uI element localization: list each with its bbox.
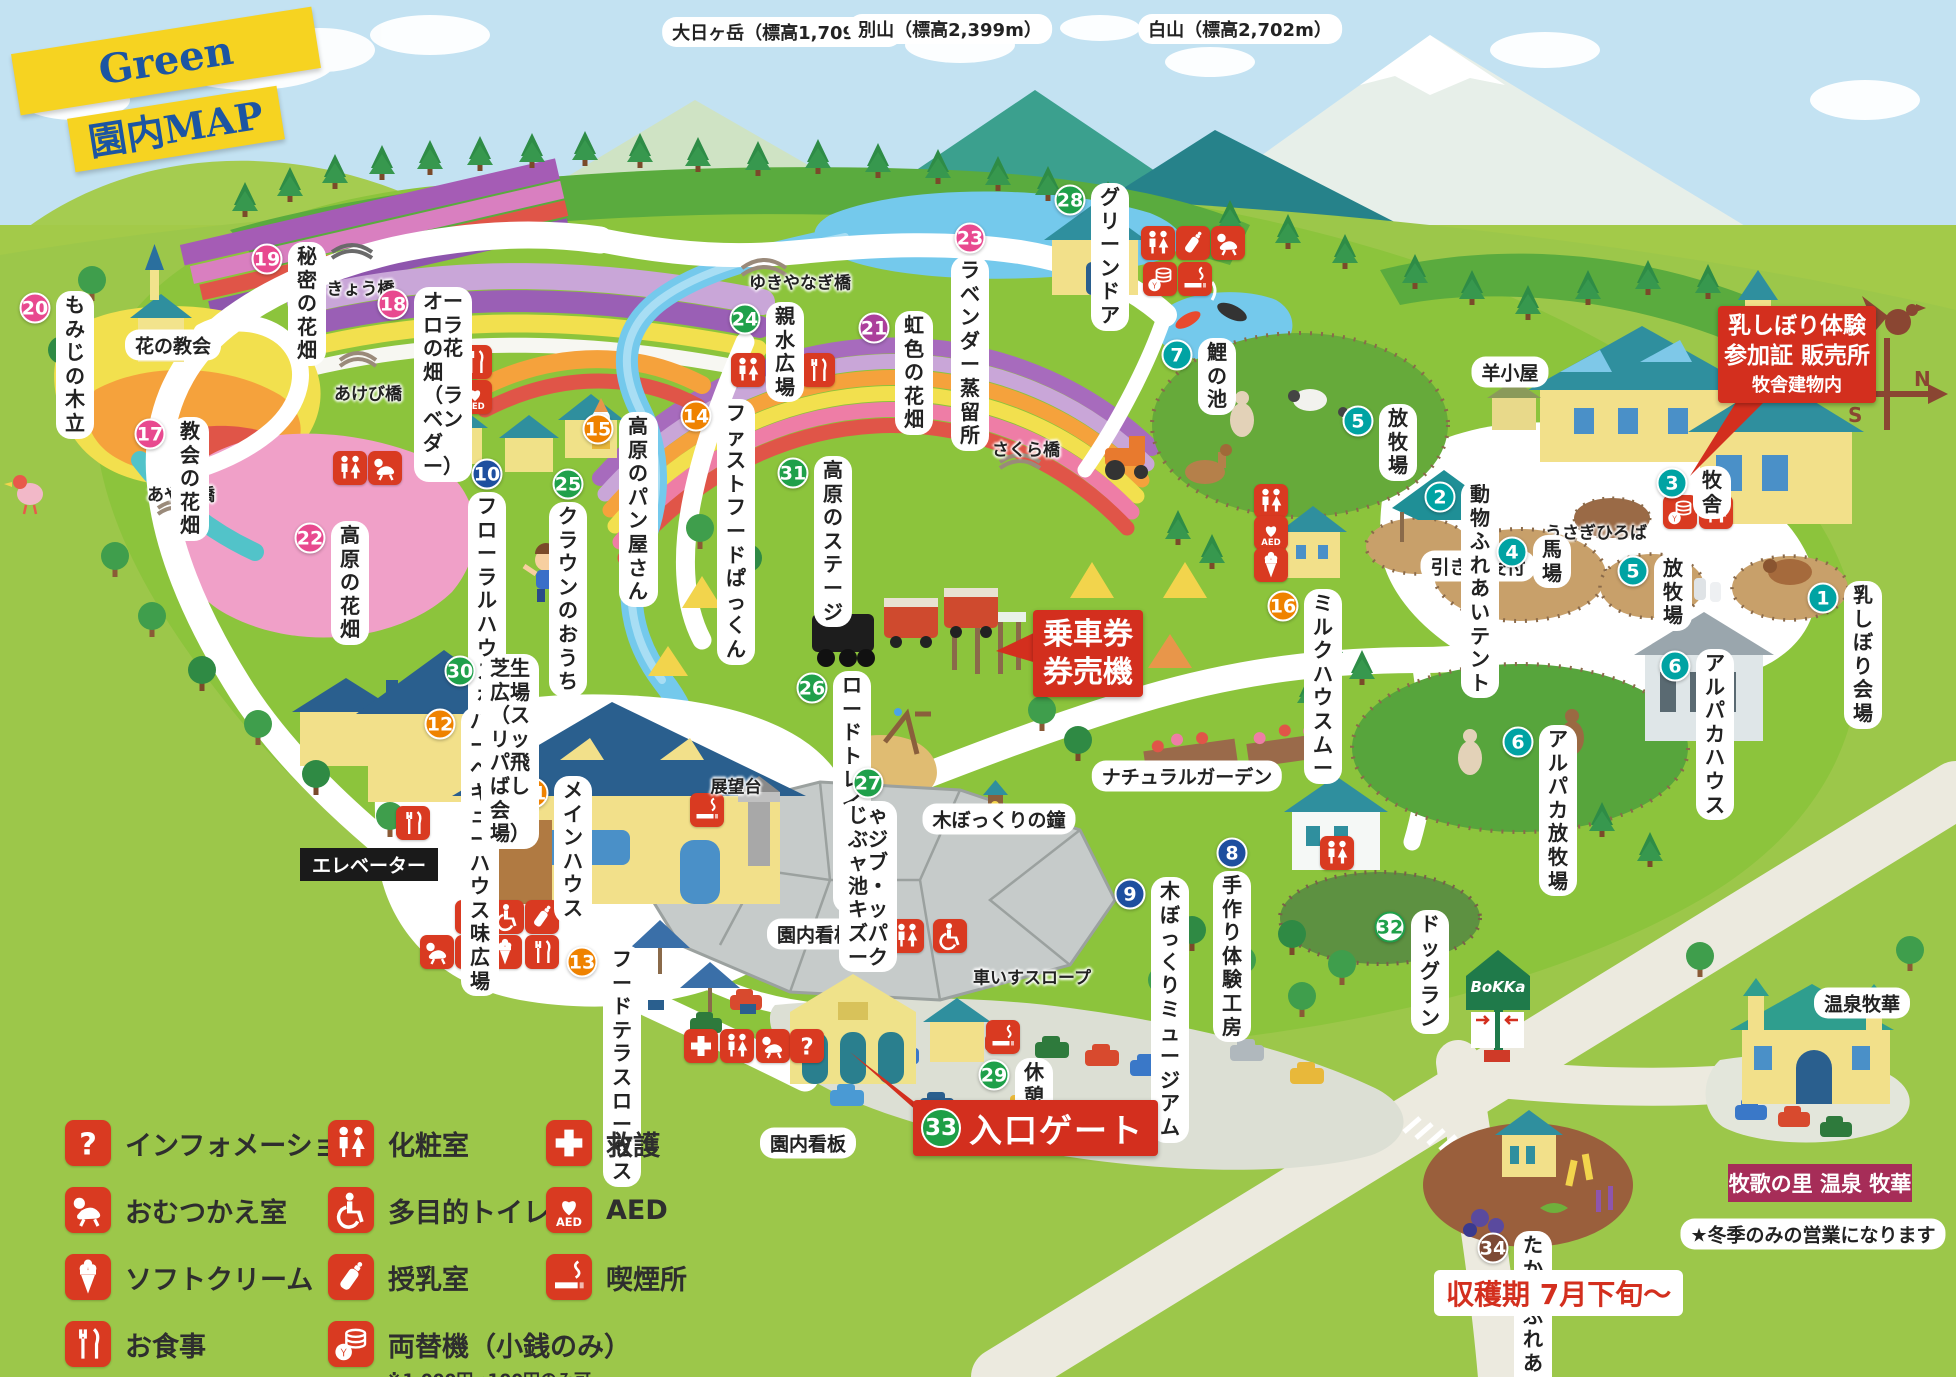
legend-item: おむつかえ室: [65, 1187, 287, 1233]
marker-number: 2: [1425, 482, 1456, 513]
milking-experience-callout: 乳しぼり体験 参加証 販売所 牧舎建物内: [1718, 306, 1876, 403]
marker-number: 19: [252, 244, 283, 275]
marker-number: 12: [425, 709, 456, 740]
marker-number: 17: [135, 419, 166, 450]
place-label: 園内看板: [760, 1128, 856, 1159]
svg-text:N: N: [1914, 367, 1931, 391]
onsen-logo: 牧歌の里 温泉 牧華: [1728, 1164, 1912, 1202]
marker-number: 30: [445, 656, 476, 687]
marker-label: 親水広場: [766, 302, 804, 402]
marker-number: 1: [1808, 583, 1839, 614]
marker-label: グリーンドア: [1091, 183, 1129, 331]
legend-label: 喫煙所: [606, 1258, 687, 1297]
svg-text:?: ?: [800, 1035, 813, 1061]
marker-number: 7: [1162, 340, 1193, 371]
marker-label: ミルクハウスムー: [1304, 589, 1342, 784]
diaper-icon: [368, 451, 402, 485]
marker-number: 29: [979, 1060, 1010, 1091]
exchange-icon: ¥: [1143, 262, 1177, 296]
legend-item: ¥両替機（小銭のみ）: [328, 1321, 631, 1367]
wheelchair-icon: [328, 1187, 374, 1233]
svg-text:BoKKa: BoKKa: [1470, 978, 1525, 996]
svg-text:¥: ¥: [1151, 281, 1158, 292]
marker-label: 乳しぼり会場: [1844, 581, 1882, 729]
svg-text:¥: ¥: [1671, 514, 1678, 525]
marker-label: 高原の パン屋さん: [619, 412, 658, 607]
marker-number: 25: [553, 469, 584, 500]
firstaid-icon: [546, 1120, 592, 1166]
meal-icon: [525, 935, 559, 969]
marker-label: ラベンダー蒸留所: [951, 256, 989, 451]
mountain-label: 白山（標高2,702m）: [1138, 14, 1342, 44]
marker-label: 秘密の花畑: [288, 242, 326, 366]
marker-number: 22: [295, 523, 326, 554]
elevator-label: エレベーター: [300, 848, 438, 881]
aed-icon: AED: [1254, 516, 1288, 550]
marker-33: 33: [921, 1108, 961, 1148]
marker-number: 4: [1497, 537, 1528, 568]
smoking-icon: [546, 1254, 592, 1300]
marker-number: 9: [1115, 879, 1146, 910]
place-label: ナチュラルガーデン: [1092, 761, 1282, 792]
toilet-icon: [720, 1029, 754, 1063]
meal-icon: [801, 353, 835, 387]
legend-label: 化粧室: [388, 1124, 469, 1163]
marker-number: 23: [955, 223, 986, 254]
meal-icon: [396, 806, 430, 840]
legend-label: 両替機（小銭のみ）: [388, 1325, 631, 1364]
marker-number: 26: [797, 673, 828, 704]
diaper-icon: [420, 935, 454, 969]
marker-label: 虹色の花畑: [895, 311, 933, 435]
legend-label: お食事: [125, 1325, 206, 1364]
legend-item: 授乳室: [328, 1254, 469, 1300]
legend-note: ※1,000円→100円のみ可: [386, 1366, 591, 1377]
smoking-icon: [986, 1020, 1020, 1054]
marker-label: 鯉の池: [1198, 338, 1236, 415]
marker-label: アルパカハウス: [1696, 649, 1734, 820]
toilet-icon: [731, 353, 765, 387]
marker-label: 手作り体験工房: [1213, 871, 1251, 1042]
exchange-icon: ¥: [1663, 495, 1697, 529]
marker-number: 6: [1503, 727, 1534, 758]
marker-label: オーロラの花畑（ラベンダー）: [414, 287, 472, 482]
toilet-icon: [1141, 226, 1175, 260]
marker-label: クラウンのおうち: [549, 502, 587, 697]
place-label: ゆきやなぎ橋: [749, 269, 851, 294]
diaper-icon: [1211, 226, 1245, 260]
mountain-label: 別山（標高2,399m）: [848, 14, 1052, 44]
legend-item: AEDAED: [546, 1187, 668, 1233]
marker-number: 24: [730, 304, 761, 335]
svg-text:?: ?: [79, 1127, 97, 1162]
park-map: BoKKa S N: [0, 0, 1956, 1377]
svg-text:AED: AED: [1261, 538, 1280, 548]
marker-label: ドッグラン: [1411, 910, 1449, 1034]
legend-item: お食事: [65, 1321, 206, 1367]
legend-item: 多目的トイレ: [328, 1187, 550, 1233]
toilet-icon: [333, 451, 367, 485]
legend-item: 化粧室: [328, 1120, 469, 1166]
marker-number: 21: [859, 313, 890, 344]
legend-label: AED: [606, 1195, 668, 1226]
marker-number: 18: [378, 289, 409, 320]
legend-label: 授乳室: [388, 1258, 469, 1297]
marker-number: 15: [583, 414, 614, 445]
marker-label: 高原の花畑: [331, 521, 369, 645]
place-label: あけび橋: [334, 380, 402, 405]
marker-number: 6: [1660, 651, 1691, 682]
smoking-icon: [690, 793, 724, 827]
place-label: 車いすスロープ: [973, 964, 1091, 989]
marker-number: 27: [853, 768, 884, 799]
place-label: 花の教会: [125, 330, 221, 361]
marker-label: 動物ふれあいテント: [1461, 480, 1499, 698]
softcream-icon: [1254, 548, 1288, 582]
svg-text:AED: AED: [556, 1215, 582, 1229]
diaper-icon: [756, 1029, 790, 1063]
place-label: さくら橋: [992, 436, 1060, 461]
place-label: ★冬季のみの営業になります: [1680, 1219, 1945, 1250]
legend-item: ?インフォメーション: [65, 1120, 367, 1166]
park-illustration: BoKKa S N: [0, 0, 1956, 1377]
marker-label: 放牧場: [1654, 554, 1692, 631]
marker-number: 5: [1343, 406, 1374, 437]
ticket-machine-callout: 乗車券 券売機: [1033, 610, 1143, 697]
toilet-icon: [1254, 484, 1288, 518]
info-icon: ?: [65, 1120, 111, 1166]
marker-label: アルパカ放牧場: [1539, 725, 1577, 896]
marker-number: 31: [778, 458, 809, 489]
marker-number: 3: [1657, 468, 1688, 499]
marker-label: もみじの木立: [56, 291, 94, 439]
aed-icon: AED: [546, 1187, 592, 1233]
svg-text:S: S: [1848, 403, 1862, 427]
nursing-icon: [328, 1254, 374, 1300]
marker-label: じゃぶジャブ池・ キッズパーク: [839, 801, 897, 972]
place-label: 展望台: [711, 773, 762, 798]
exchange-icon: ¥: [328, 1321, 374, 1367]
legend-item: 喫煙所: [546, 1254, 687, 1300]
legend-label: 多目的トイレ: [388, 1191, 550, 1230]
marker-number: 14: [681, 401, 712, 432]
marker-number: 20: [20, 293, 51, 324]
toilet-icon: [328, 1120, 374, 1166]
legend-label: おむつかえ室: [125, 1191, 287, 1230]
marker-number: 5: [1618, 556, 1649, 587]
marker-number: 32: [1375, 912, 1406, 943]
legend-item: ソフトクリーム: [65, 1254, 313, 1300]
legend-label: ソフトクリーム: [125, 1258, 313, 1297]
nursing-icon: [1176, 226, 1210, 260]
entrance-gate-callout: 33 入口ゲート: [913, 1100, 1158, 1156]
marker-label: 教会の花畑: [171, 417, 209, 541]
svg-text:¥: ¥: [339, 1345, 348, 1360]
legend-item: 救護: [546, 1120, 660, 1166]
marker-label: 芝生広場（スリッパ飛ばし会場）: [481, 654, 539, 849]
softcream-icon: [65, 1254, 111, 1300]
meal-icon: [65, 1321, 111, 1367]
marker-number: 34: [1478, 1233, 1509, 1264]
marker-label: 高原のステージ: [814, 456, 852, 627]
place-label: 木ぼっくりの鐘: [922, 804, 1075, 835]
marker-number: 8: [1217, 838, 1248, 869]
marker-label: 牧舎: [1693, 466, 1731, 519]
place-label: 羊小屋: [1471, 357, 1548, 388]
harvest-period-label: 収穫期 7月下旬～: [1434, 1270, 1683, 1316]
wheelchair-icon: [933, 919, 967, 953]
info-icon: ?: [790, 1029, 824, 1063]
legend-label: 救護: [606, 1124, 660, 1163]
marker-number: 28: [1055, 185, 1086, 216]
marker-label: 放牧場: [1379, 404, 1417, 481]
marker-label: 馬場: [1533, 535, 1571, 588]
marker-number: 10: [472, 459, 503, 490]
marker-label: ファストフード ぱっくん: [717, 399, 755, 665]
marker-number: 16: [1268, 591, 1299, 622]
firstaid-icon: [684, 1029, 718, 1063]
place-label: 温泉牧華: [1814, 988, 1910, 1019]
diaper-icon: [65, 1187, 111, 1233]
toilet-icon: [1320, 836, 1354, 870]
smoking-icon: [1178, 262, 1212, 296]
marker-label: メインハウス: [554, 776, 592, 924]
marker-number: 13: [567, 947, 598, 978]
